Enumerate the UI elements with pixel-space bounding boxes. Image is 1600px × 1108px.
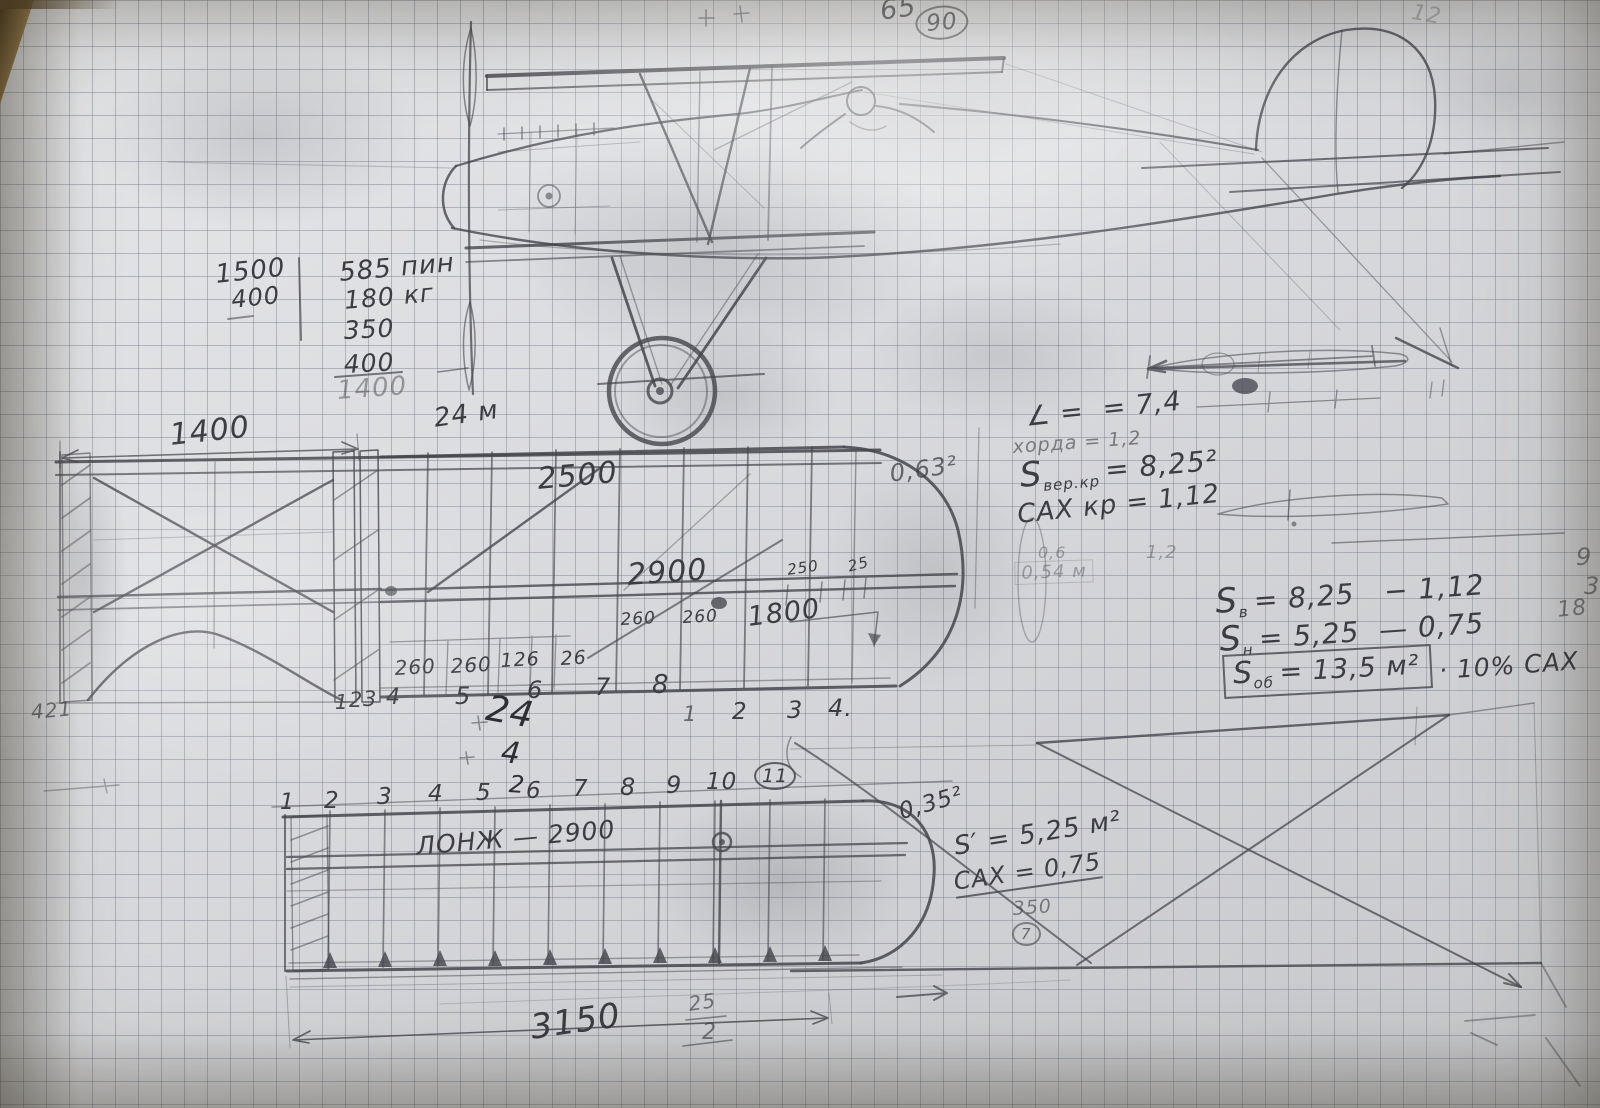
- faint-12: 1,2: [1146, 542, 1178, 563]
- lower-rib-9: 9: [666, 771, 682, 799]
- lower-rib-11-circled: 11: [754, 762, 796, 790]
- lower-wing-plan-sketch: [272, 781, 1070, 1048]
- upper-rib-8: 8: [652, 670, 670, 700]
- lower-rib-1: 1: [280, 790, 295, 815]
- s-symbol: S: [1018, 454, 1044, 496]
- upper-rib-b3: 3: [787, 696, 803, 724]
- faint-054: 0,54 м: [1014, 559, 1094, 585]
- scribble-2: 2: [508, 770, 526, 799]
- lower-rib-10: 10: [706, 769, 737, 795]
- faint-06: 0,6: [1038, 543, 1066, 562]
- edge-18: 18: [1556, 595, 1588, 623]
- s-total-subscript: об: [1253, 673, 1274, 692]
- cell-260-2: 260: [450, 652, 492, 678]
- lower-rib-6: 6: [526, 778, 542, 804]
- lower-rib-5: 5: [476, 780, 492, 806]
- frac-25: 25: [687, 988, 718, 1016]
- faint-note-12: 12: [1410, 0, 1444, 30]
- upper-rib-5: 5: [455, 682, 471, 710]
- cell-126: 126: [500, 648, 540, 672]
- note-350: 350: [1012, 895, 1053, 920]
- note-421: 421: [30, 696, 73, 723]
- circled-7: 7: [1012, 922, 1041, 946]
- edge-9: 9: [1576, 543, 1592, 571]
- dim-2900: 2900: [626, 552, 709, 593]
- s-total-value: = 13,5 м²: [1279, 650, 1421, 688]
- lower-rib-8: 8: [620, 773, 636, 801]
- calc-sum-1400: 1400: [336, 371, 408, 406]
- lower-rib-7: 7: [573, 776, 589, 802]
- dim-260-b: 260: [682, 606, 718, 628]
- scribble-24: 24: [483, 688, 537, 737]
- tailplane-plan-sketch: [787, 703, 1580, 1086]
- upper-rib-1: 1: [335, 690, 349, 714]
- frac-2: 2: [702, 1020, 717, 1045]
- upper-rib-b1: 1: [683, 702, 697, 726]
- scribble-4: 4: [499, 735, 523, 772]
- upper-rib-b2: 2: [732, 699, 748, 725]
- upper-rib-4: 4: [386, 685, 401, 710]
- upper-rib-7: 7: [595, 673, 611, 701]
- lower-rib-4: 4: [428, 781, 444, 807]
- misc-marks: [44, 258, 487, 793]
- upper-rib-2: 2: [349, 688, 363, 712]
- pencil-sketch-linework: [0, 0, 1600, 1108]
- cell-26: 26: [560, 647, 587, 670]
- upper-rib-b4: 4.: [828, 694, 853, 722]
- upper-rib-3: 3: [363, 687, 377, 711]
- edge-3: 3: [1584, 572, 1600, 600]
- calc-400-left: 400: [230, 281, 281, 314]
- calc-350: 350: [343, 313, 395, 345]
- pencil-blueprint-photo: 65 90 12 1500 400 585 пин 180 кг 350 400…: [0, 0, 1600, 1108]
- cell-260-1: 260: [394, 654, 436, 680]
- lower-rib-3: 3: [377, 784, 393, 810]
- dim-2500: 2500: [536, 455, 619, 497]
- s-symbol: S: [1214, 580, 1239, 621]
- lower-rib-2: 2: [324, 788, 340, 814]
- dim-260-a: 260: [620, 608, 656, 630]
- s-symbol: S: [1232, 655, 1254, 691]
